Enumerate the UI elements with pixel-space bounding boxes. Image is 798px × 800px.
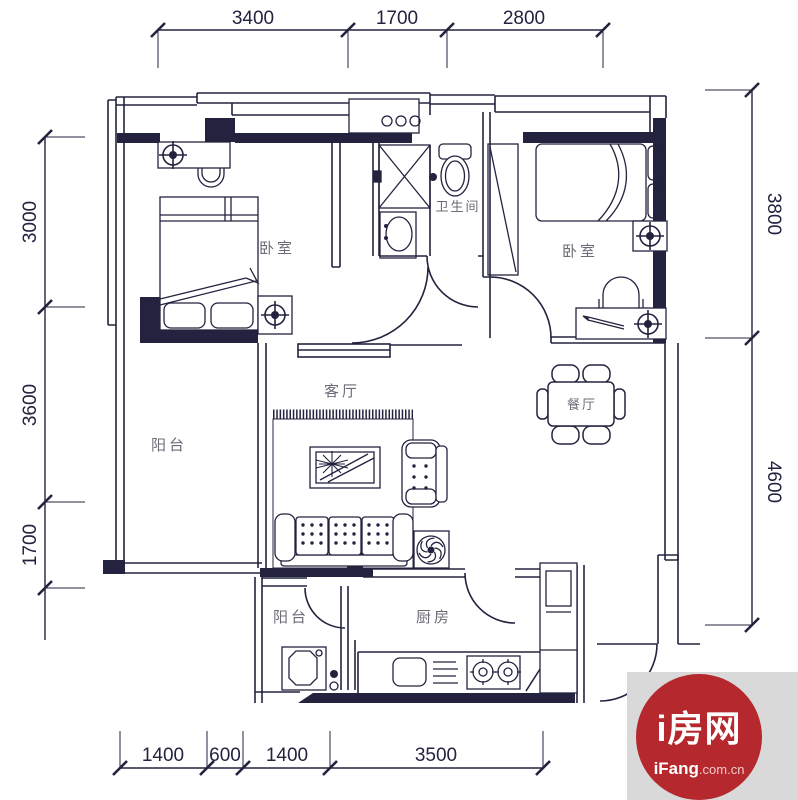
door-bedroom-right — [490, 277, 551, 338]
floor-plan-page: 3400 1700 2800 3000 3600 1700 3800 4600 … — [0, 0, 798, 800]
door-bedroom-left — [352, 267, 428, 343]
dim-bottom-4: 3500 — [415, 745, 457, 766]
room-label-kitchen: 厨房 — [416, 609, 452, 626]
kitchen-fixtures — [393, 563, 577, 693]
chair-icon — [583, 365, 610, 383]
sink-icon — [380, 212, 416, 258]
room-label-balcony-left: 阳台 — [151, 437, 187, 454]
dim-left-3: 1700 — [20, 524, 41, 566]
room-label-bedroom-right: 卧室 — [562, 243, 598, 260]
fridge-icon — [540, 563, 577, 693]
dim-bottom-3: 1400 — [266, 745, 308, 766]
door-bathroom — [427, 256, 478, 307]
chair-icon — [552, 365, 579, 383]
washing-machine-icon — [282, 647, 326, 690]
dim-bottom-2: 600 — [209, 745, 241, 766]
chair-icon — [552, 426, 579, 444]
chair-icon — [614, 389, 625, 419]
door-balcony — [305, 588, 345, 628]
dim-right-1: 3800 — [763, 193, 784, 235]
room-label-balcony-bottom: 阳台 — [273, 609, 309, 626]
room-label-bathroom: 卫生间 — [435, 199, 480, 214]
dim-top-2: 1700 — [376, 8, 418, 29]
room-label-bedroom-left: 卧室 — [259, 240, 295, 257]
bedroom-right-furniture — [488, 144, 667, 339]
bedroom-left-furniture — [158, 141, 292, 334]
floor-plan: 3400 1700 2800 3000 3600 1700 3800 4600 … — [0, 0, 798, 800]
bed-icon — [160, 197, 258, 330]
dim-left-2: 3600 — [20, 384, 41, 426]
chair-icon — [537, 389, 548, 419]
door-kitchen — [465, 573, 515, 623]
armchair-icon — [402, 440, 447, 507]
balcony-bottom-fixtures — [282, 647, 338, 690]
dim-top-3: 2800 — [503, 8, 545, 29]
fan-icon — [414, 531, 449, 568]
dim-right-2: 4600 — [763, 461, 784, 503]
living-room-furniture — [273, 414, 449, 568]
chair-icon — [599, 277, 643, 311]
toilet-icon — [439, 144, 471, 196]
stove-icon — [467, 656, 521, 689]
rack-icon — [433, 662, 458, 683]
ifang-brand-text: i房网 — [656, 708, 741, 749]
room-label-dining: 餐厅 — [567, 397, 597, 412]
dim-bottom-1: 1400 — [142, 745, 184, 766]
bathroom-fixtures — [349, 99, 471, 258]
shower-icon — [374, 145, 430, 208]
bed-icon — [536, 144, 664, 221]
stool-icon — [198, 168, 224, 187]
kitchen-sink-icon — [393, 658, 426, 686]
ifang-watermark: i房网 iFang.com.cn — [627, 672, 798, 800]
dim-left-1: 3000 — [20, 201, 41, 243]
sofa-icon — [275, 514, 413, 566]
dim-top-1: 3400 — [232, 8, 274, 29]
chair-icon — [583, 426, 610, 444]
wardrobe-icon — [488, 144, 518, 275]
ifang-site-text: iFang.com.cn — [654, 759, 745, 778]
room-label-living: 客厅 — [324, 383, 360, 400]
cabinet-icon — [349, 99, 419, 133]
